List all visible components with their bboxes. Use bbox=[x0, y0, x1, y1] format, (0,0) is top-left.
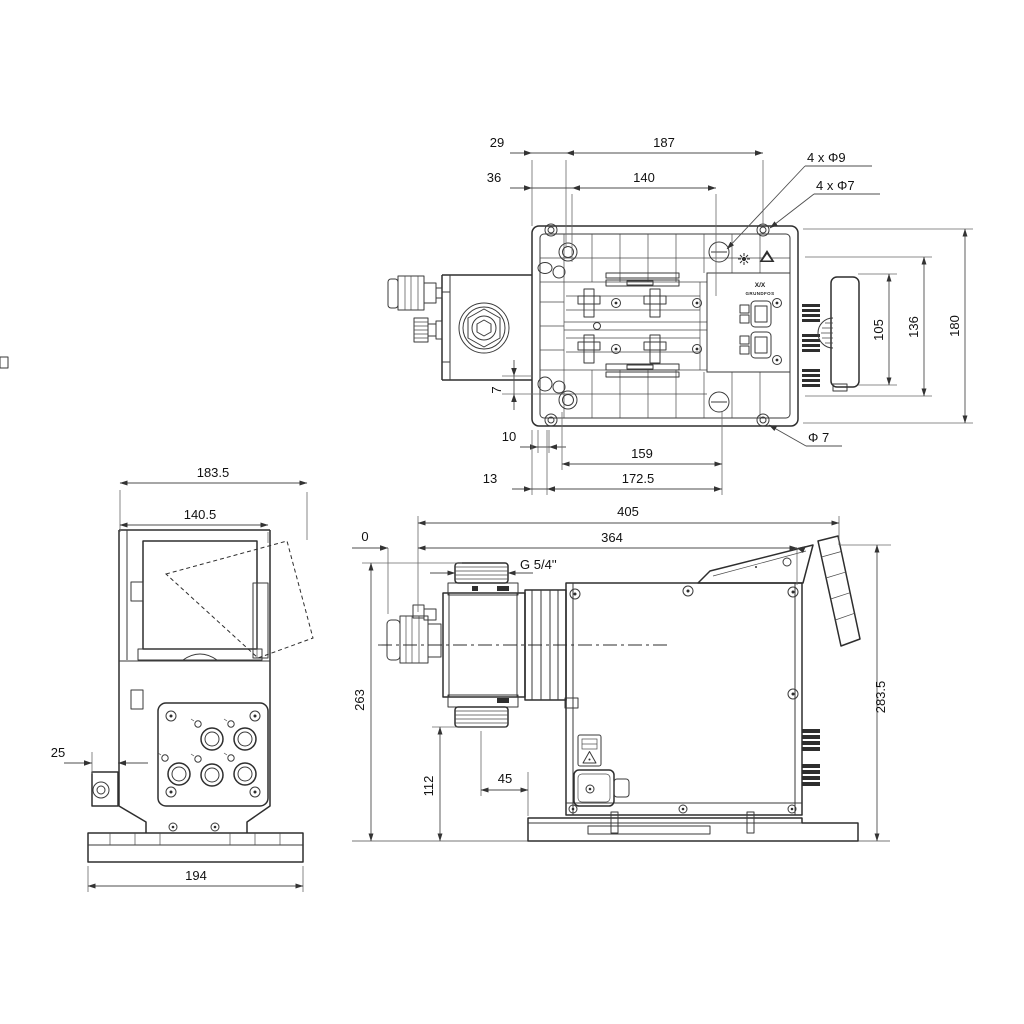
background bbox=[0, 0, 1024, 1024]
dim-105: 105 bbox=[871, 319, 886, 341]
dim-29: 29 bbox=[490, 135, 504, 150]
dim-364: 364 bbox=[601, 530, 623, 545]
dim-112: 112 bbox=[421, 776, 436, 797]
technical-drawing: X/X GRUNDFOS bbox=[0, 0, 1024, 1024]
dim-136: 136 bbox=[906, 316, 921, 338]
dim-45: 45 bbox=[498, 771, 512, 786]
drawing-page: X/X GRUNDFOS bbox=[0, 0, 1024, 1024]
dim-405: 405 bbox=[617, 504, 639, 519]
callout-dia7: Φ 7 bbox=[808, 430, 829, 445]
dim-7: 7 bbox=[489, 386, 504, 393]
dim-194: 194 bbox=[185, 868, 207, 883]
dim-0: 0 bbox=[361, 529, 368, 544]
dim-283-5: 283.5 bbox=[873, 681, 888, 714]
dim-159: 159 bbox=[631, 446, 653, 461]
dim-187: 187 bbox=[653, 135, 675, 150]
dim-140-5: 140.5 bbox=[184, 507, 217, 522]
ebox-area: X/X GRUNDFOS bbox=[707, 273, 790, 372]
dim-172-5: 172.5 bbox=[622, 471, 655, 486]
dim-13: 13 bbox=[483, 471, 497, 486]
dim-10: 10 bbox=[502, 429, 516, 444]
marking-text: X/X bbox=[755, 282, 766, 289]
dim-140: 140 bbox=[633, 170, 655, 185]
callout-4x9: 4 x Φ9 bbox=[807, 150, 846, 165]
dim-25: 25 bbox=[51, 745, 65, 760]
dim-180: 180 bbox=[947, 315, 962, 337]
callout-4x7: 4 x Φ7 bbox=[816, 178, 855, 193]
dim-36: 36 bbox=[487, 170, 501, 185]
dim-thread: G 5/4'' bbox=[520, 557, 557, 572]
dim-263: 263 bbox=[352, 689, 367, 711]
side-connectors bbox=[802, 304, 820, 387]
brand-text: GRUNDFOS bbox=[746, 291, 775, 296]
dim-183-5: 183.5 bbox=[197, 465, 230, 480]
